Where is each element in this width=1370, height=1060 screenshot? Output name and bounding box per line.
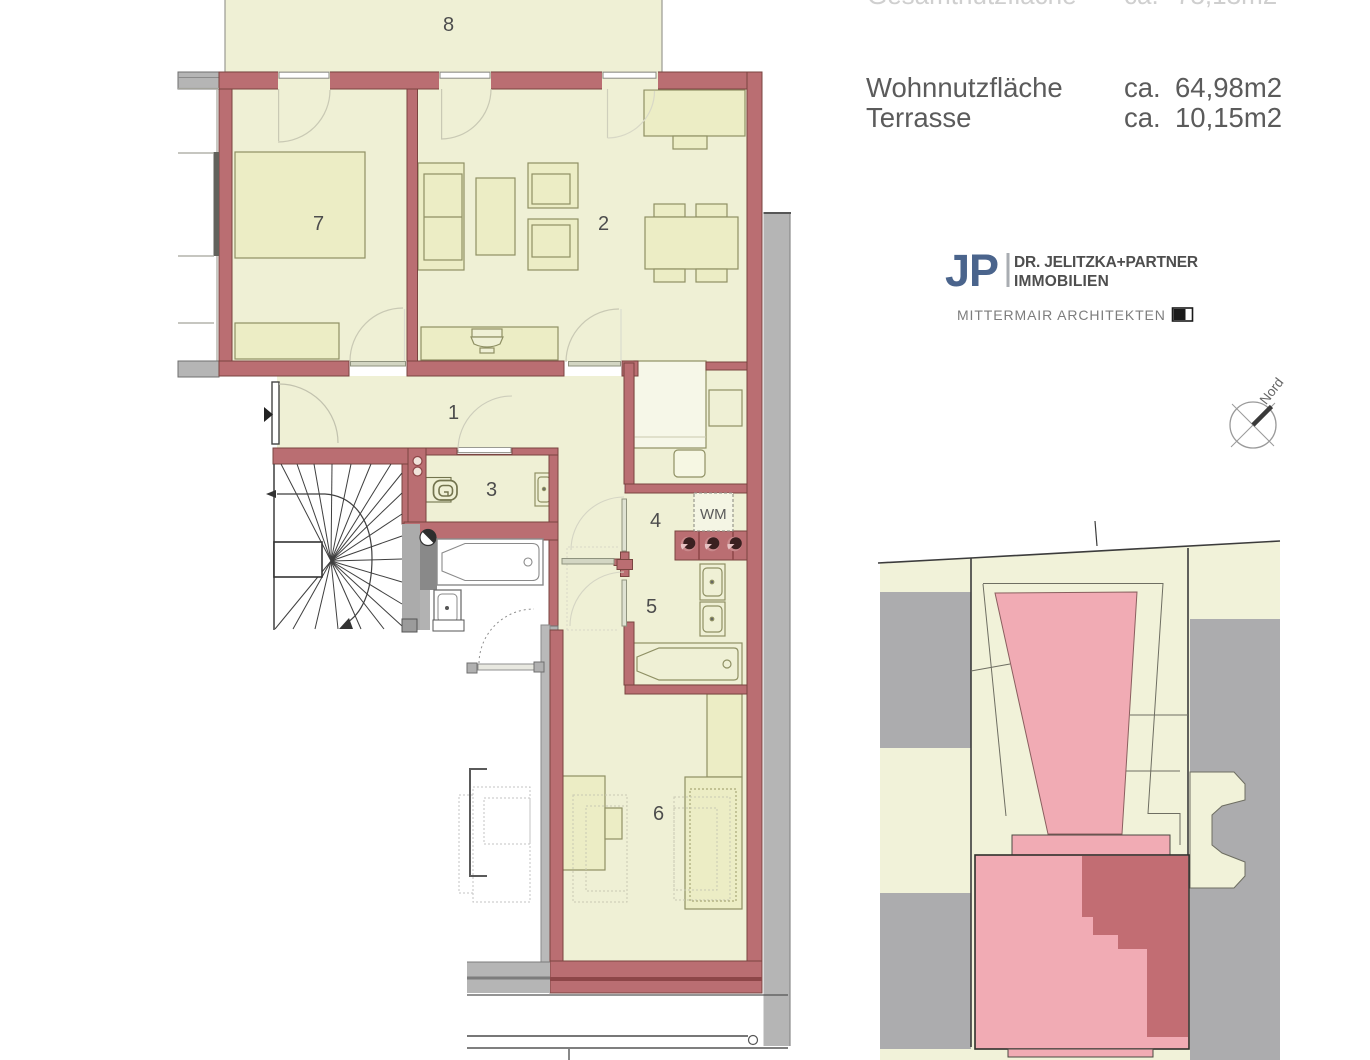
svg-text:ca.: ca. — [1124, 72, 1161, 103]
svg-text:ca.: ca. — [1124, 0, 1159, 10]
svg-text:64,98m2: 64,98m2 — [1175, 72, 1282, 103]
svg-text:ca.: ca. — [1124, 102, 1161, 133]
svg-text:1: 1 — [448, 402, 459, 424]
svg-text:5: 5 — [646, 596, 657, 618]
svg-text:JP: JP — [945, 245, 998, 296]
svg-text:6: 6 — [653, 803, 664, 825]
svg-text:7: 7 — [313, 213, 324, 235]
svg-text:8: 8 — [443, 14, 454, 36]
svg-text:10,15m2: 10,15m2 — [1175, 102, 1282, 133]
svg-text:Nord: Nord — [1257, 375, 1287, 407]
svg-text:IMMOBILIEN: IMMOBILIEN — [1014, 273, 1109, 290]
svg-text:Wohnnutzfläche: Wohnnutzfläche — [866, 72, 1063, 103]
svg-text:2: 2 — [598, 213, 609, 235]
svg-text:MITTERMAIR ARCHITEKTEN: MITTERMAIR ARCHITEKTEN — [957, 307, 1166, 323]
svg-text:Terrasse: Terrasse — [866, 102, 971, 133]
svg-text:4: 4 — [650, 510, 661, 532]
svg-text:WM: WM — [700, 506, 727, 523]
svg-text:75,13m2: 75,13m2 — [1176, 0, 1277, 10]
svg-text:DR. JELITZKA+PARTNER: DR. JELITZKA+PARTNER — [1014, 254, 1198, 271]
svg-text:Gesamtnutzfläche: Gesamtnutzfläche — [867, 0, 1077, 10]
svg-text:3: 3 — [486, 479, 497, 501]
